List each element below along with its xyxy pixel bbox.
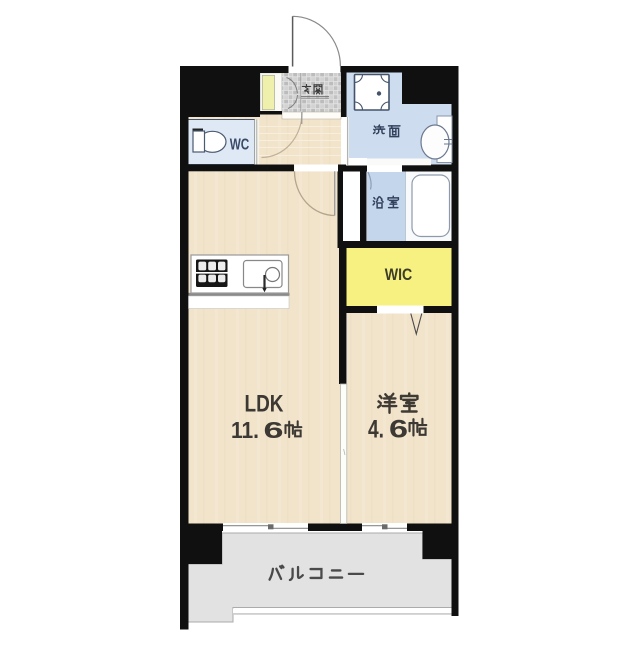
- svg-text:6: 6: [389, 416, 408, 444]
- svg-text:LDK: LDK: [245, 391, 285, 418]
- svg-text:4.: 4.: [368, 416, 384, 444]
- svg-text:WIC: WIC: [385, 265, 413, 284]
- svg-text:11.: 11.: [231, 417, 259, 443]
- svg-text:6: 6: [264, 417, 284, 443]
- svg-text:WC: WC: [230, 137, 250, 154]
